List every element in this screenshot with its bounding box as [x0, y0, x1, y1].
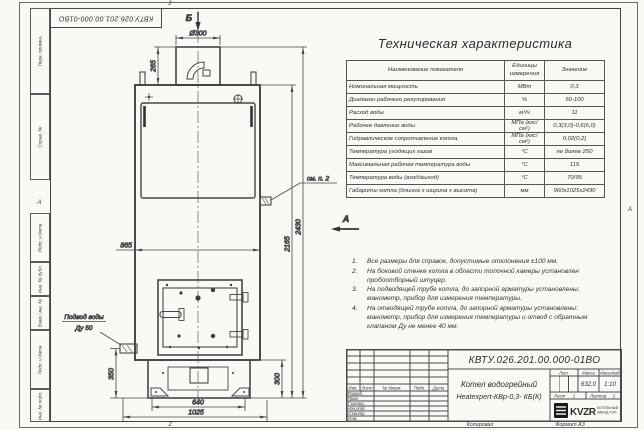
table-row: Габариты котла (длинна х ширина х высота… [347, 185, 605, 198]
drawing-sheet: Перв. примен. Справ. № Подп. и дата Инв.… [0, 0, 644, 430]
spec-name: Гидравлическое сопротивление котла [347, 133, 505, 146]
note-number: 4. [352, 305, 367, 331]
scale-value: 1:10 [604, 382, 616, 388]
dim-label-chimney-diameter: Ø300 [188, 31, 206, 38]
spec-name: Рабочее давление воды [347, 120, 505, 133]
margin-box-vzam-inv: Взам. инв. № [30, 296, 50, 330]
ash-door [190, 368, 208, 383]
spec-value: 0,3(3,0)-0,6(6,0) [545, 120, 605, 133]
note-number: 2. [352, 268, 367, 286]
list-item: 4.На отводящей трубе котла, до запорной … [352, 305, 608, 331]
spec-unit: МПа (кгс/см²) [505, 133, 545, 146]
title-block: Изм. Лист № докум. Подп. Дата Разраб. Пр… [346, 349, 622, 422]
stamp-doc-number: КВТУ.026.201.00.000-01ВО [469, 355, 601, 366]
spec-header-value: Значение [545, 61, 605, 81]
spec-table-title: Техническая характеристика [346, 36, 604, 51]
table-row: Расход водым³/ч11 [347, 107, 605, 120]
zone-marker-top: 2 [163, 1, 177, 7]
margin-box-label: Подп. и дата [38, 345, 43, 374]
spec-value: 0,02(0,2) [545, 133, 605, 146]
spec-value: 11 [545, 107, 605, 120]
spec-name: Габариты котла (длинна х ширина х высота… [347, 185, 505, 198]
product-name-line1: Котел водогрейный [461, 380, 538, 389]
kvzr-logo: KVZR КОТЕЛЬНЫЙ ЗАВОД РЭП [554, 403, 619, 418]
spec-header-row: Наименование показателя Единицы измерени… [347, 61, 605, 81]
margin-box-podp-data-2: Подп. и дата [30, 330, 50, 389]
margin-box-label: Справ. № [38, 127, 43, 148]
spec-value: 115 [545, 159, 605, 172]
lit-label: Лит. [558, 370, 569, 375]
zone-marker-left: А [31, 200, 48, 206]
table-row: Гидравлическое сопротивление котлаМПа (к… [347, 133, 605, 146]
spec-name: Максимальная рабочая температура воды [347, 159, 505, 172]
note-text: Все размеры для справок, допустимые откл… [367, 258, 608, 267]
note-number: 1. [352, 258, 367, 267]
boiler-front-view: Б Ø300 265 [57, 8, 367, 422]
section-b-label: Б [186, 13, 193, 23]
view-a-label: А [342, 214, 350, 224]
callout-water-inlet-line2: Ду 50 [75, 325, 93, 332]
spec-value: 70/95 [545, 172, 605, 185]
note-text: На отводящей трубе котла, до запорной ар… [367, 305, 608, 331]
zone-marker-right: А [623, 207, 637, 213]
spec-unit: °С [505, 146, 545, 159]
list-item: 1.Все размеры для справок, допустимые от… [352, 258, 608, 267]
rev-header-podp: Подп. [414, 385, 425, 390]
dim-total-height: 2430 [220, 47, 307, 398]
zone-marker-bottom: 2 [163, 422, 177, 428]
note-text: На боковой стенке котла в области топочн… [367, 268, 608, 286]
margin-box-label: Подп. и дата [38, 223, 43, 252]
spec-header-units: Единицы измерения [505, 61, 545, 81]
margin-box-label: Взам. инв. № [38, 299, 43, 327]
flue-elbow [187, 62, 204, 79]
sheets-number: 2 [612, 394, 616, 399]
sheets-label: Листов [589, 394, 607, 399]
dim-label-inlet-height: 350 [109, 368, 116, 380]
spec-name: Температура воды (вход/выход) [347, 172, 505, 185]
spec-unit: МВт [505, 81, 545, 94]
role-utv: Утв. [348, 416, 358, 421]
kvzr-logo-text: KVZR [570, 407, 597, 418]
lifting-lug-left [140, 72, 145, 85]
table-row: Диапазон рабочего регулирования%50-100 [347, 94, 605, 107]
note-number: 3. [352, 286, 367, 304]
sheet-number: 1 [573, 394, 576, 399]
product-name-line2: Heatexpert-КВр-0,3- КБ(К) [456, 392, 541, 401]
margin-box-label: Инв. № подл. [38, 391, 43, 420]
mass-label: Масса [582, 370, 595, 375]
table-row: Номинальная мощностьМВт0,3 [347, 81, 605, 94]
door-bolts [166, 284, 232, 349]
water-inlet-callout: Подвод воды Ду 50 [62, 313, 137, 353]
list-item: 2.На боковой стенке котла в области топо… [352, 268, 608, 286]
technical-notes: 1.Все размеры для справок, допустимые от… [352, 258, 608, 333]
dim-label-total-height: 2430 [296, 219, 303, 236]
flue-flange [203, 70, 210, 76]
spec-value: 960х1025х2430 [545, 185, 605, 198]
footer-copied-by: Копировал [430, 422, 530, 428]
spec-unit: °С [505, 172, 545, 185]
dim-base-height: 300 [250, 360, 286, 398]
scale-label: Масштаб [600, 370, 620, 375]
dim-label-body-height: 2165 [285, 236, 292, 253]
footer-format: Формат А3 [530, 422, 610, 428]
spec-unit: °С [505, 159, 545, 172]
kvzr-logo-subtext1: КОТЕЛЬНЫЙ [597, 406, 619, 410]
table-row: Максимальная рабочая температура воды°С1… [347, 159, 605, 172]
margin-box-sprav-no: Справ. № [30, 94, 50, 180]
margin-box-perv-primen: Перв. примен. [30, 8, 50, 94]
spec-name: Номинальная мощность [347, 81, 505, 94]
dim-label-base-height: 300 [275, 373, 282, 385]
rev-header-list: Лист [360, 385, 372, 390]
table-row: Рабочее давление водыМПа (кгс/см²)0,3(3,… [347, 120, 605, 133]
margin-box-inv-podl: Инв. № подл. [30, 389, 50, 422]
rev-header-data: Дата [432, 385, 445, 390]
spec-header-name: Наименование показателя [347, 61, 505, 81]
dim-chimney-height: 265 [151, 47, 177, 85]
section-b-arrow: Б [186, 12, 201, 31]
mass-value: 632,0 [581, 382, 597, 388]
spec-name: Диапазон рабочего регулирования [347, 94, 505, 107]
spec-value: 50-100 [545, 94, 605, 107]
sampling-fitting-callout: см. п. 2 [260, 176, 337, 206]
dim-body-width: 865 [116, 243, 260, 252]
dim-label-chimney-height: 265 [151, 60, 158, 73]
view-a-arrow: А [331, 214, 359, 232]
foot-right [232, 388, 249, 396]
rev-header-izm: Изм. [348, 385, 357, 390]
lifting-lug-right [251, 72, 256, 85]
spec-name: Температура уходящих газов [347, 146, 505, 159]
list-item: 3.На подводящей трубе котла, до запорной… [352, 286, 608, 304]
callout-see-note: см. п. 2 [307, 176, 330, 183]
margin-box-label: Перв. примен. [38, 36, 43, 67]
table-row: Температура уходящих газов°Сне более 250 [347, 146, 605, 159]
dim-label-base-width: 640 [192, 400, 204, 407]
base-ash-chamber [148, 360, 250, 398]
dim-inlet-height: 350 [109, 349, 149, 399]
spec-unit: % [505, 94, 545, 107]
spec-name: Расход воды [347, 107, 505, 120]
margin-box-label: Инв. № дубл. [38, 265, 43, 293]
furnace-door [158, 280, 248, 355]
kvzr-logo-subtext2: ЗАВОД РЭП [597, 411, 617, 415]
table-row: Температура воды (вход/выход)°С70/95 [347, 172, 605, 185]
dim-label-body-width: 865 [120, 243, 132, 250]
margin-box-inv-dubl: Инв. № дубл. [30, 262, 50, 296]
spec-unit: м³/ч [505, 107, 545, 120]
spec-value: 0,3 [545, 81, 605, 94]
callout-water-inlet-line1: Подвод воды [64, 313, 104, 321]
spec-unit: МПа (кгс/см²) [505, 120, 545, 133]
dim-body-height: 2165 [260, 85, 296, 398]
spec-unit: мм [505, 185, 545, 198]
spec-table: Наименование показателя Единицы измерени… [346, 60, 605, 198]
note-text: На подводящей трубе котла, до запорной а… [367, 286, 608, 304]
dim-label-footprint-width: 1025 [188, 410, 204, 417]
rev-header-docnum: № докум. [383, 385, 402, 390]
spec-value: не более 250 [545, 146, 605, 159]
margin-box-podp-data-1: Подп. и дата [30, 213, 50, 262]
foot-left [151, 388, 168, 396]
sheet-label: Лист [553, 394, 566, 399]
